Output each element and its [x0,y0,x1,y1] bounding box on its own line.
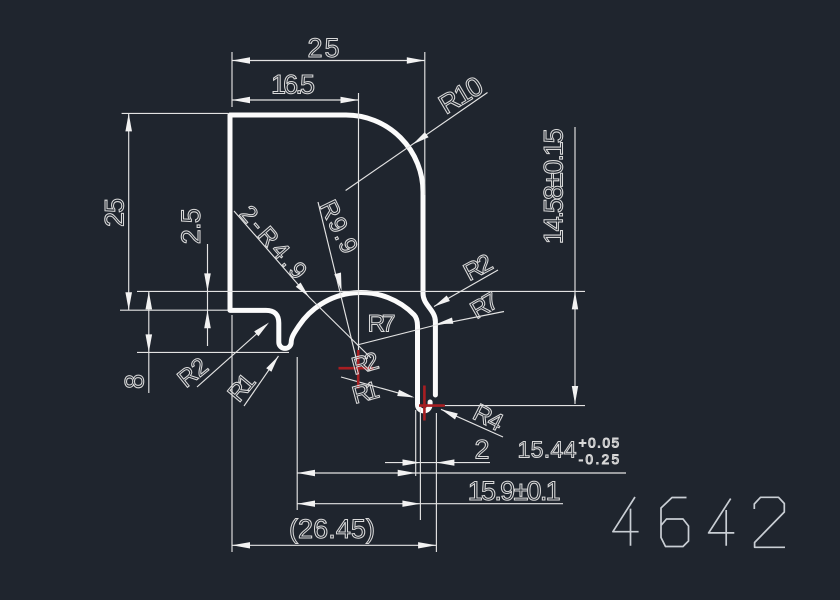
svg-text:+0.05: +0.05 [579,436,620,451]
svg-text:25: 25 [308,33,340,63]
svg-text:8: 8 [120,374,150,389]
svg-text:15.44: 15.44 [518,437,577,463]
svg-text:15.9±0.1: 15.9±0.1 [468,476,561,506]
svg-text:14.58±0.15: 14.58±0.15 [539,128,569,244]
svg-text:-0.25: -0.25 [579,452,620,467]
svg-text:R7: R7 [368,310,396,337]
svg-text:25: 25 [100,198,130,227]
svg-text:(26.45): (26.45) [289,514,375,544]
svg-text:16.5: 16.5 [271,70,315,100]
svg-text:2: 2 [474,434,489,464]
svg-text:2.5: 2.5 [176,208,206,244]
